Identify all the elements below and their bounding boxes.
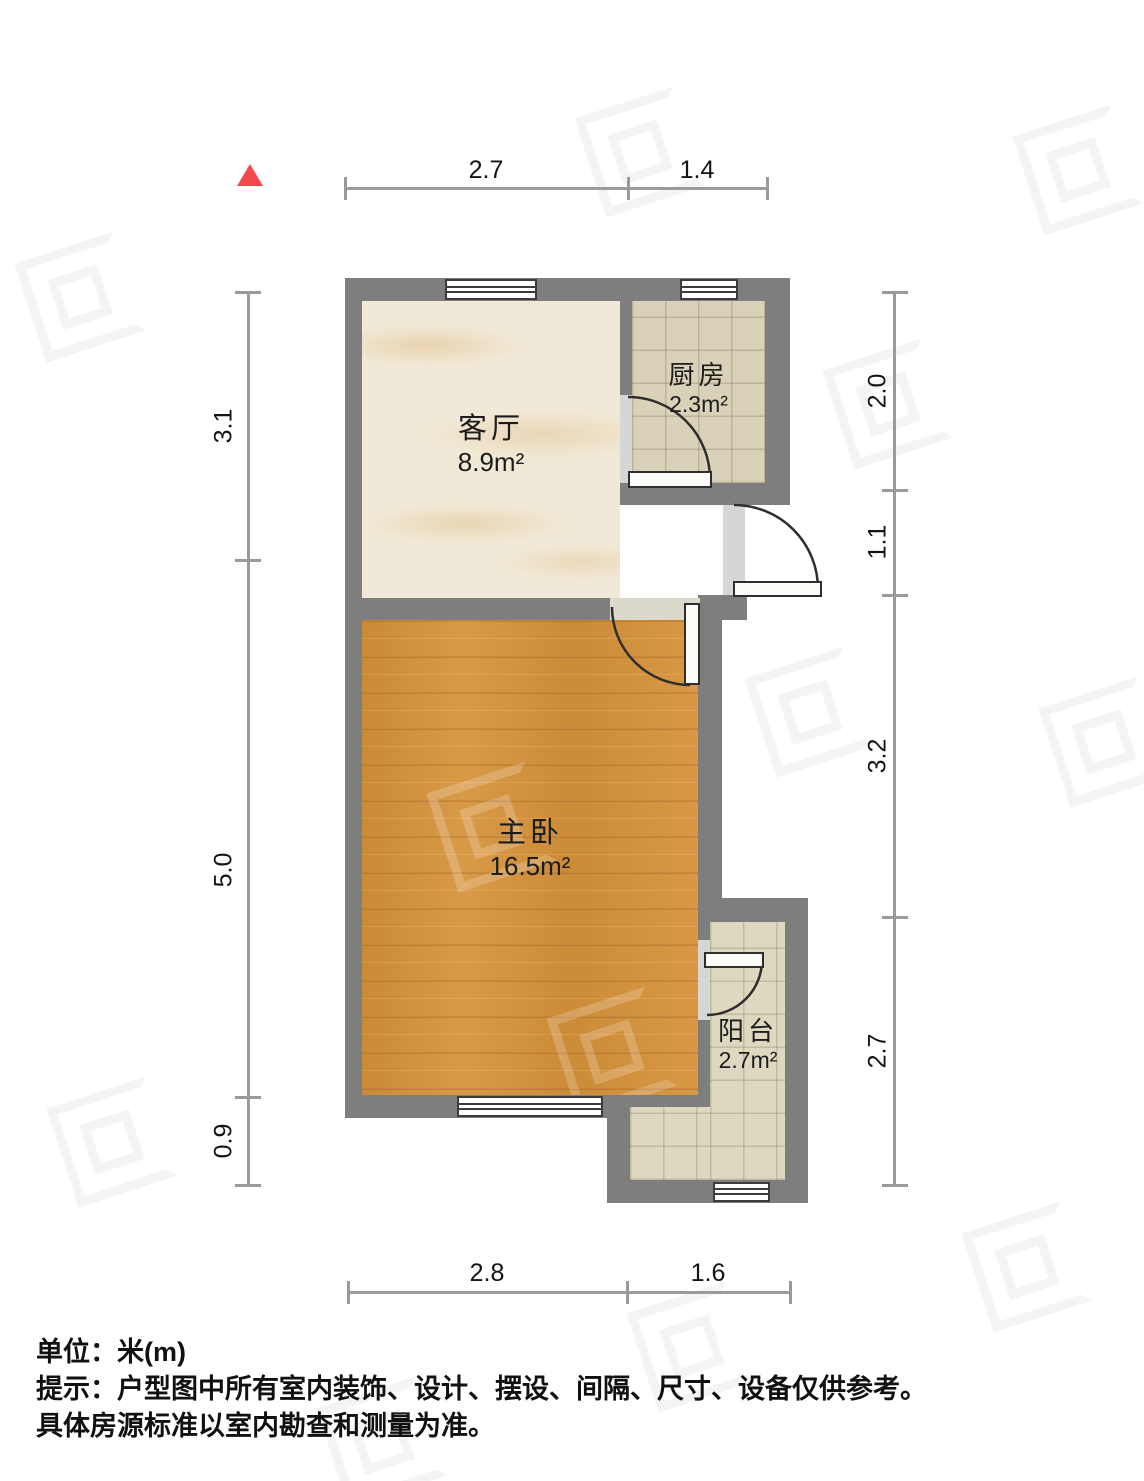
dim-tick	[882, 489, 908, 492]
dim-line-bottom	[348, 1291, 791, 1294]
dim-right-1: 2.0	[864, 374, 893, 409]
dim-tick	[882, 1184, 908, 1187]
tip-line-1: 提示：户型图中所有室内装饰、设计、摆设、间隔、尺寸、设备仅供参考。	[36, 1371, 1116, 1408]
balcony-door-leaf	[704, 952, 764, 968]
tip-line-2: 具体房源标准以室内勘查和测量为准。	[36, 1408, 1116, 1445]
dim-tick	[235, 559, 261, 562]
footer-notes: 单位：米(m) 提示：户型图中所有室内装饰、设计、摆设、间隔、尺寸、设备仅供参考…	[36, 1334, 1116, 1445]
kitchen-door-leaf	[628, 471, 712, 488]
dim-tick	[882, 594, 908, 597]
living-room-area: 8.9m²	[362, 446, 620, 478]
floor-plan-canvas: 客厅 8.9m² 厨房 2.3m² 主卧 16.5m² 阳台 2.7m² 2.7…	[0, 0, 1144, 1481]
dim-right-4: 2.7	[864, 1034, 893, 1069]
dim-tick	[882, 916, 908, 919]
dim-left-3: 0.9	[210, 1124, 239, 1159]
dim-line-left	[247, 292, 250, 1185]
entry-door-arc	[734, 505, 818, 589]
dim-right-3: 3.2	[864, 739, 893, 774]
dim-line-top	[345, 187, 768, 190]
dim-tick	[766, 177, 769, 200]
unit-note: 单位：米(m)	[36, 1334, 1116, 1371]
dim-top-2: 1.4	[660, 156, 734, 185]
dim-tick	[789, 1281, 792, 1304]
dim-tick	[627, 177, 630, 200]
dim-tick	[235, 1096, 261, 1099]
bedroom-label: 主卧 16.5m²	[362, 816, 698, 882]
kitchen-area: 2.3m²	[632, 390, 765, 418]
living-room-label: 客厅 8.9m²	[362, 412, 620, 478]
bedroom-door-arc	[612, 607, 690, 685]
kitchen-name: 厨房	[632, 360, 765, 390]
dim-bottom-2: 1.6	[672, 1259, 744, 1288]
dim-right-2: 1.1	[864, 525, 893, 560]
dim-line-right	[893, 292, 896, 1185]
dim-tick	[347, 1281, 350, 1304]
balcony-door-arc	[707, 960, 762, 1015]
bedroom-area: 16.5m²	[362, 850, 698, 882]
dim-tick	[882, 291, 908, 294]
dim-tick	[235, 291, 261, 294]
door-swing-arcs	[0, 0, 1144, 1481]
bedroom-door-leaf	[684, 603, 700, 685]
dim-tick	[235, 1184, 261, 1187]
balcony-area: 2.7m²	[698, 1046, 798, 1074]
balcony-name: 阳台	[698, 1016, 798, 1046]
bedroom-name: 主卧	[362, 816, 698, 850]
dim-tick	[344, 177, 347, 200]
dim-top-1: 2.7	[450, 156, 522, 185]
entry-door-leaf	[733, 581, 822, 597]
living-room-name: 客厅	[362, 412, 620, 446]
kitchen-label: 厨房 2.3m²	[632, 360, 765, 418]
dim-left-2: 5.0	[210, 853, 239, 888]
dim-tick	[626, 1281, 629, 1304]
dim-left-1: 3.1	[210, 409, 239, 444]
dim-bottom-1: 2.8	[451, 1259, 523, 1288]
balcony-label: 阳台 2.7m²	[698, 1016, 798, 1074]
